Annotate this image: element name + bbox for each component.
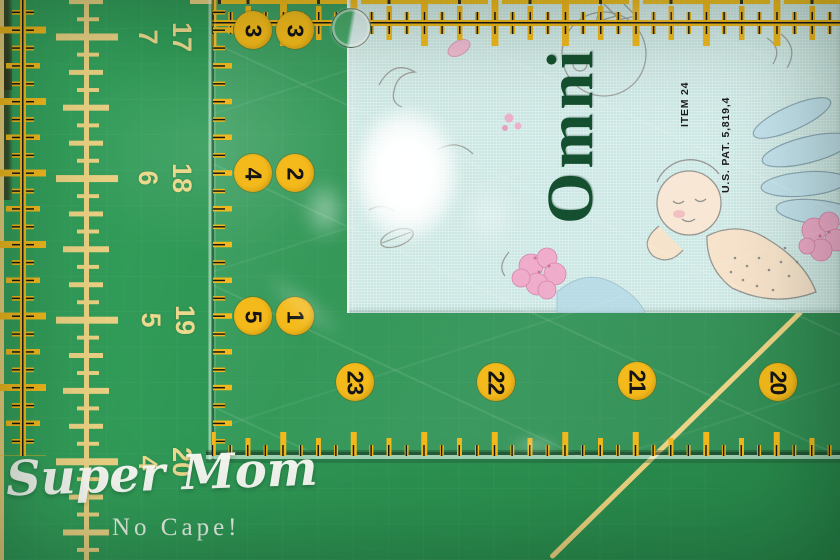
ruler-number: 3 [239,24,266,36]
ruler-inch-line-vertical [0,0,46,456]
ruler-number-circle: 5 [234,297,272,335]
ruler-acrylic-body [212,0,840,458]
ruler-number-circle: 21 [618,362,656,400]
mat-number-primary: 19 [167,302,203,338]
ruler-number-circle: 20 [759,363,797,401]
ruler-number: 22 [483,370,510,394]
ruler-number: 23 [342,370,369,394]
ruler-number-circle: 1 [276,297,314,335]
ruler-number-circle: 3 [276,11,314,49]
ruler-item-label: ITEM 24 [679,82,691,127]
mat-number-secondary: 6 [130,160,166,196]
ruler-left-edge-ticks [213,0,233,456]
mat-number-secondary: 7 [130,19,166,55]
photo-quilting-ruler-on-mat: 7 17 6 18 5 19 4 20 [0,0,840,560]
ruler-number: 20 [765,370,792,394]
ruler-number-circle: 3 [234,11,272,49]
ruler-number-circle: 2 [276,154,314,192]
omnigrid-logo: Omni [533,47,609,224]
ruler-number: 4 [239,167,266,179]
ruler-number: 3 [281,24,308,36]
ruler-patent-label: U.S. PAT. 5,819,4 [720,97,732,193]
ruler-number-circle: 22 [477,363,515,401]
mat-number-primary: 18 [164,160,200,196]
ruler-number: 1 [281,310,308,322]
ruler-number: 2 [281,167,308,179]
watermark-title: Super Mom [5,441,318,508]
ruler-number-circle: 23 [336,363,374,401]
mat-number-secondary: 5 [133,302,169,338]
mat-number-primary: 17 [164,19,200,55]
ruler-number: 21 [624,369,651,393]
watermark-subtitle: No Cape! [112,514,241,542]
ruler-number-circle: 4 [234,154,272,192]
ruler-number: 5 [239,310,266,322]
ruler-hanging-hole [331,8,371,48]
